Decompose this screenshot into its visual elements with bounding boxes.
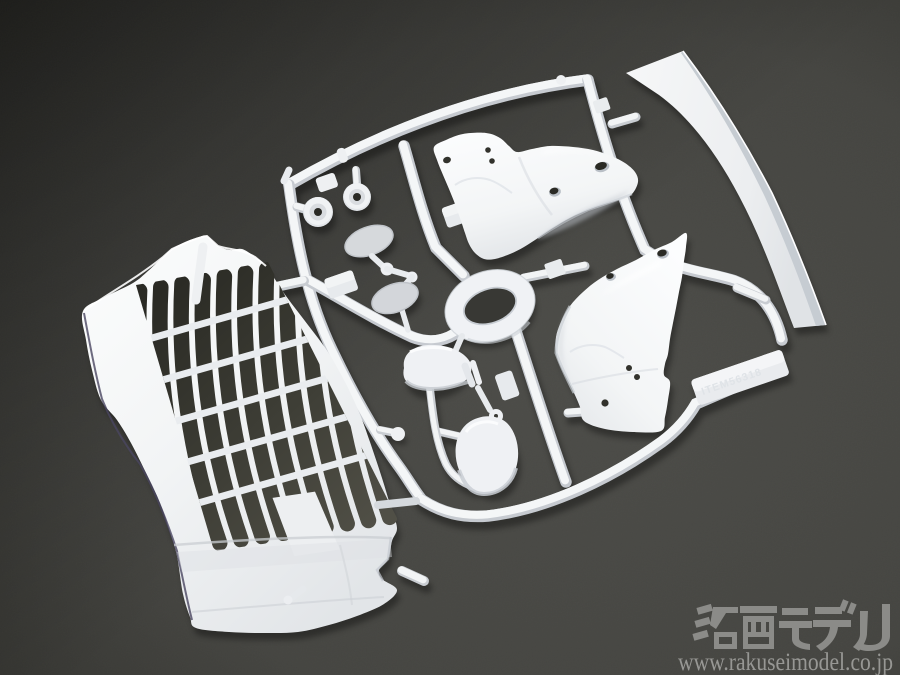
svg-text:www.rakuseimodel.co.jp: www.rakuseimodel.co.jp bbox=[678, 649, 893, 675]
